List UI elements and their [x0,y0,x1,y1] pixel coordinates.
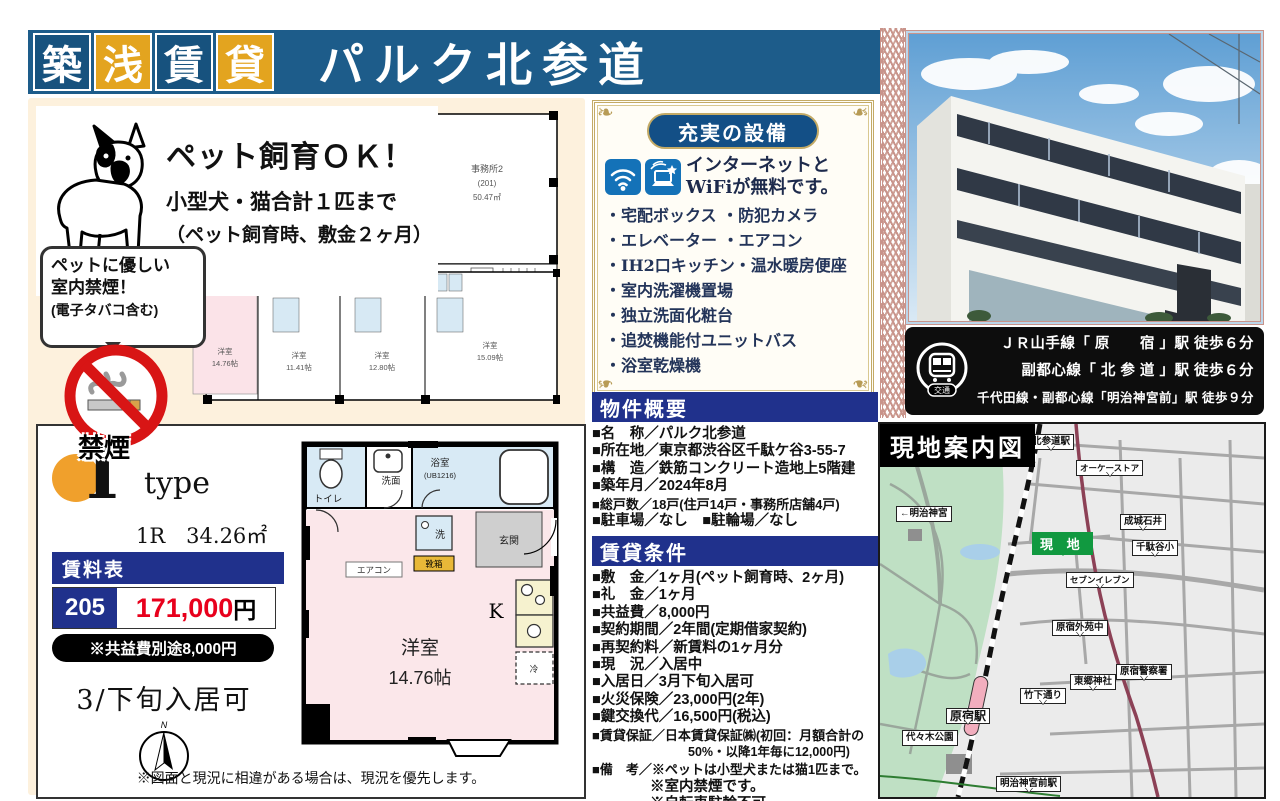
map-label: 原宿駅 [946,708,990,724]
equipment-item: ・エレベーター ・エアコン [605,228,863,253]
map-site-label: 現 地 [1032,532,1093,555]
svg-text:14.76帖: 14.76帖 [212,358,239,368]
map-label: 原宿警察署 [1116,664,1172,680]
conditions-row: ※自転車駐輪不可。 [592,796,878,801]
conditions-row: ■備 考／※ペットは小型犬または猫1匹まで。 [592,761,878,778]
badge-char: 浅 [96,35,150,89]
property-title: パルク北参道 [318,29,654,95]
title-banner: 築 浅 賃 貸 パルク北参道 [28,30,880,94]
no-smoking-bubble: ペットに優しい 室内禁煙！ (電子タバコ含む) [40,246,206,348]
overview-row: ■総戸数／18戸(住戸14戸・事務所店舗4戸) [592,496,878,513]
building-photo [905,30,1264,325]
equipment-item: ・浴室乾燥機 [605,353,863,378]
wifi-free-line1: インターネットと [686,155,839,177]
flourish-icon: ❧ [852,373,869,393]
bubble-line: 室内禁煙！ [51,277,203,299]
overview-row: ■所在地／東京都渋谷区千駄ケ谷3-55-7 [592,443,878,460]
svg-text:エアコン: エアコン [357,565,391,575]
svg-text:11.41帖: 11.41帖 [286,362,312,372]
equipment-box: ❧ ❧ ❧ ❧ 充実の設備 インターネットと WiFiが無料です。 [592,100,874,396]
map-label: ←明治神宮 [896,506,952,522]
wifi-free-line2: WiFiが無料です。 [686,177,839,199]
conditions-row: ■契約期間／2年間(定期借家契約) [592,622,878,639]
unit-detail-box: I type 1R 34.26㎡ 賃料表 205 171,000 円 ※共益費別… [36,424,586,799]
equipment-item: ・追焚機能付ユニットバス [605,328,863,353]
access-box: 交通 ＪＲ山手線「 原 宿 」駅 徒歩６分 副都心線「 北 参 道 」駅 徒歩６… [905,327,1264,415]
flourish-icon: ❧ [852,103,869,123]
overview-row: ■駐車場／なし ■駐輪場／なし [592,513,878,530]
svg-text:15.09帖: 15.09帖 [477,352,504,362]
equipment-header: 充実の設備 [647,113,819,149]
building-photo-art [909,34,1260,321]
conditions-row: ■礼 金／1ヶ月 [592,587,878,604]
overview-row: ■築年月／2024年8月 [592,478,878,495]
access-lines: ＪＲ山手線「 原 宿 」駅 徒歩６分 副都心線「 北 参 道 」駅 徒歩６分 千… [973,331,1264,412]
svg-text:洗: 洗 [435,529,445,541]
access-line: ＪＲ山手線「 原 宿 」駅 徒歩６分 [973,331,1254,358]
map-label: セブンイレブン [1066,572,1134,588]
svg-text:玄関: 玄関 [499,534,519,547]
equipment-item: ・IH2口キッチン・温水暖房便座 [605,253,863,278]
overview-row: ■構 造／鉄筋コンクリート造地上5階建 [592,461,878,478]
flourish-icon: ❧ [597,103,614,123]
bubble-line: (電子タバコ含む) [51,299,203,321]
svg-text:洋室: 洋室 [218,346,233,356]
svg-text:洋室: 洋室 [292,350,307,360]
rent-table-header: 賃料表 [52,552,284,584]
badge-char: 賃 [157,35,211,89]
map-label: 東郷神社 [1070,674,1116,690]
svg-text:トイレ: トイレ [314,494,343,505]
map-label: 千駄谷小 [1132,540,1178,556]
room-number: 205 [53,588,117,628]
svg-text:事務所2: 事務所2 [471,163,503,174]
equipment-item: ・宅配ボックス ・防犯カメラ [605,203,863,228]
rent-amount: 171,000 [136,593,234,624]
conditions-rows: ■敷 金／1ヶ月(ペット飼育時、2ヶ月) ■礼 金／1ヶ月 ■共益費／8,000… [592,570,878,801]
no-smoking-label: 禁煙 [78,428,130,465]
map-label: 明治神宮前駅 [996,776,1061,792]
wifi-icon [605,159,641,195]
map-label: 成城石井 [1120,514,1166,530]
overview-row: ■名 称／パルク北参道 [592,426,878,443]
rent-row: 205 171,000 円 [52,587,276,629]
svg-text:冷: 冷 [530,664,539,674]
site-map: 現地案内図 北参道駅 オーケーストア ←明治神宮 成城石井 千駄谷小 現 地 セ… [878,422,1266,799]
conditions-header: 賃貸条件 [592,536,878,566]
map-label: 代々木公園 [902,730,958,746]
svg-text:浴室: 浴室 [430,457,449,469]
svg-text:洋室: 洋室 [375,350,390,360]
conditions-row: ■鍵交換代／16,500円(税込) [592,709,878,726]
equipment-list: ・宅配ボックス ・防犯カメラ ・エレベーター ・エアコン ・IH2口キッチン・温… [605,203,863,378]
conditions-row: ■入居日／3月下旬入居可 [592,674,878,691]
conditions-row: 50%・以降1年毎に12,000円) [592,744,878,761]
conditions-row: ■火災保険／23,000円(2年) [592,692,878,709]
svg-text:12.80帖: 12.80帖 [369,362,396,372]
type-word: type [144,466,210,501]
flyer-page: 築 浅 賃 貸 パルク北参道 事務所2 (201) 50.47㎡ EV [0,0,1280,801]
conditions-row: ■敷 金／1ヶ月(ペット飼育時、2ヶ月) [592,570,878,587]
svg-text:14.76帖: 14.76帖 [388,668,451,688]
unit-floorplan: トイレ 洗面 浴室 (UB1216) 玄関 洗 靴箱 エアコン [288,432,574,762]
svg-text:(201): (201) [478,179,497,188]
equipment-item: ・室内洗濯機置場 [605,278,863,303]
map-label: オーケーストア [1076,460,1143,476]
map-label: 原宿外苑中 [1052,620,1108,636]
access-line: 副都心線「 北 参 道 」駅 徒歩６分 [973,358,1254,385]
train-icon: 交通 [911,338,973,404]
svg-text:K: K [489,599,505,623]
overview-rows: ■名 称／パルク北参道 ■所在地／東京都渋谷区千駄ケ谷3-55-7 ■構 造／鉄… [592,426,878,530]
braid-divider [880,28,906,418]
svg-text:交通: 交通 [934,385,950,395]
badge-char: 貸 [218,35,272,89]
plan-disclaimer: ※図面と現況に相違がある場合は、現況を優先します。 [48,768,574,788]
pet-line1: 小型犬・猫合計１匹まで [166,186,434,216]
conditions-row: ■賃貸保証／日本賃貸保証㈱(初回：月額合計の [592,727,878,744]
rent-unit: 円 [233,591,256,625]
fee-note: ※共益費別途8,000円 [52,634,274,662]
svg-text:洋室: 洋室 [483,340,498,350]
svg-text:N: N [161,720,168,730]
bubble-line: ペットに優しい [51,255,203,277]
svg-text:洋室: 洋室 [401,637,439,659]
map-title: 現地案内図 [880,424,1035,467]
move-in-date: 3/下旬入居可 [64,678,264,717]
svg-text:50.47㎡: 50.47㎡ [473,193,501,202]
conditions-row: ■現 況／入居中 [592,657,878,674]
flourish-icon: ❧ [597,373,614,393]
laptop-wifi-icon [645,159,681,195]
map-label: 竹下通り [1020,688,1066,704]
pet-headline: ペット飼育ＯＫ！ [166,132,434,176]
equipment-item: ・独立洗面化粧台 [605,303,863,328]
conditions-row: ※室内禁煙です。 [592,779,878,796]
badge-char: 築 [35,35,89,89]
conditions-row: ■再契約料／新賃料の1ヶ月分 [592,640,878,657]
access-line: 千代田線・副都心線「明治神宮前」駅 徒歩９分 [973,385,1254,412]
unit-spec: 1R 34.26㎡ [136,520,267,550]
svg-text:洗面: 洗面 [381,475,400,487]
pet-line2: （ペット飼育時、敷金２ヶ月） [166,220,434,247]
conditions-row: ■共益費／8,000円 [592,605,878,622]
overview-header: 物件概要 [592,392,878,422]
svg-text:靴箱: 靴箱 [425,559,443,569]
svg-text:(UB1216): (UB1216) [424,471,457,480]
